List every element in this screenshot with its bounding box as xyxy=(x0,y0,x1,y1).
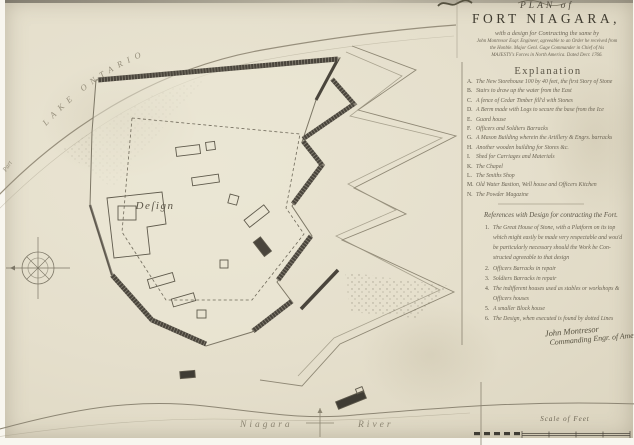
explanation-item: G.A Mason Building wherein the Artillery… xyxy=(467,135,612,141)
item-number: 6. xyxy=(485,316,493,322)
reference-item: 2.Officers Barracks in repair xyxy=(485,266,556,272)
item-number: 1. xyxy=(485,225,493,231)
item-text: A Mason Building wherein the Artillery &… xyxy=(476,135,612,141)
plan-of-title: PLAN of xyxy=(462,1,632,11)
item-text: Another wooden building for Stores &c. xyxy=(476,145,569,151)
item-text: A fence of Cedar Timber fill'd with Ston… xyxy=(476,98,573,104)
reference-item: 6.The Design, when executed is found by … xyxy=(485,316,613,322)
item-letter: C. xyxy=(467,98,476,104)
item-letter: I. xyxy=(467,154,476,160)
item-text: Stairs to draw up the water from the Eas… xyxy=(476,88,572,94)
compass-rose-icon xyxy=(6,237,70,299)
item-text: The Great House of Stone, with a Platfor… xyxy=(493,225,615,231)
reference-item: 4.The indifferent houses used as stables… xyxy=(485,286,619,292)
item-letter: D. xyxy=(467,107,476,113)
item-letter: M. xyxy=(467,182,476,188)
fort-niagara-title: FORT NIAGARA, xyxy=(460,11,632,27)
subtitle-line: John Montresor Esqr. Engineer, agreeable… xyxy=(461,39,633,44)
item-text: Shed for Carriages and Materials xyxy=(476,154,555,160)
explanation-item: F.Officers and Soldiers Barracks xyxy=(467,126,548,132)
item-letter: G. xyxy=(467,135,476,141)
reference-item-line: structed agreeable to that design xyxy=(493,255,569,261)
item-letter: L. xyxy=(467,173,476,179)
reference-item: 3.Soldiers Barracks in repair xyxy=(485,276,556,282)
item-letter: E. xyxy=(467,117,476,123)
stipple-area xyxy=(345,272,452,318)
explanation-item: B.Stairs to draw up the water from the E… xyxy=(467,88,572,94)
explanation-item: L.The Smiths Shop xyxy=(467,173,515,179)
item-number: 3. xyxy=(485,276,493,282)
item-letter: F. xyxy=(467,126,476,132)
niagara-river-label-word1: Niagara xyxy=(240,420,293,430)
item-text: The Chapel xyxy=(476,164,503,170)
item-letter: N. xyxy=(467,192,476,198)
item-text: Officers Barracks in repair xyxy=(493,266,556,272)
reference-item: 1.The Great House of Stone, with a Platf… xyxy=(485,225,615,231)
reference-item-line: Officers houses xyxy=(493,296,529,302)
item-text: The Powder Magazine xyxy=(476,192,529,198)
reference-item-line: which might easily be made very respecta… xyxy=(493,235,622,241)
explanation-item: K.The Chapel xyxy=(467,164,503,170)
item-number: 5. xyxy=(485,306,493,312)
explanation-item: H.Another wooden building for Stores &c. xyxy=(467,145,569,151)
item-text: The Smiths Shop xyxy=(476,173,515,179)
niagara-river-label-word2: River xyxy=(358,420,394,430)
item-text: A Berm made with Logs to secure the base… xyxy=(476,107,604,113)
item-text: Guard house xyxy=(476,117,506,123)
subtitle-line: MAJESTY's Forces in North America. Dated… xyxy=(461,53,633,58)
design-label: Deſign xyxy=(120,200,190,212)
explanation-item: A.The New Storehouse 100 by 40 feet, the… xyxy=(467,79,612,85)
explanation-heading: Explanation xyxy=(462,66,634,77)
explanation-item: C.A fence of Cedar Timber fill'd with St… xyxy=(467,98,573,104)
item-letter: B. xyxy=(467,88,476,94)
subtitle-line: with a design for Contracting the same b… xyxy=(461,30,633,37)
item-text: Soldiers Barracks in repair xyxy=(493,276,556,282)
scale-of-feet-label: Scale of Feet xyxy=(513,415,617,423)
item-letter: A. xyxy=(467,79,476,85)
explanation-item: E.Guard house xyxy=(467,117,506,123)
explanation-item: N.The Powder Magazine xyxy=(467,192,529,198)
item-text: Officers and Soldiers Barracks xyxy=(476,126,548,132)
item-letter: K. xyxy=(467,164,476,170)
references-heading: References with Design for contracting t… xyxy=(484,212,634,219)
item-text: The indifferent houses used as stables o… xyxy=(493,286,619,292)
explanation-item: D.A Berm made with Logs to secure the ba… xyxy=(467,107,604,113)
explanation-item: I.Shed for Carriages and Materials xyxy=(467,154,555,160)
explanation-item: M.Old Water Bastion, Well house and Offi… xyxy=(467,182,597,188)
item-number: 2. xyxy=(485,266,493,272)
map-scan: LAKE ONTARIO PLAN of FORT NIAGARA, with … xyxy=(0,0,634,445)
item-text: A smaller Block house xyxy=(493,306,545,312)
item-number: 4. xyxy=(485,286,493,292)
item-text: The New Storehouse 100 by 40 feet, the f… xyxy=(476,79,612,85)
item-letter: H. xyxy=(467,145,476,151)
scale-bar xyxy=(474,431,630,438)
subtitle-line: the Honble. Major Genl. Gage Commander i… xyxy=(461,46,633,51)
item-text: The Design, when executed is found by do… xyxy=(493,316,613,322)
reference-item-line: be particularly necessary should the Wor… xyxy=(493,245,611,251)
reference-item: 5.A smaller Block house xyxy=(485,306,545,312)
item-text: Old Water Bastion, Well house and Office… xyxy=(476,182,597,188)
north-arrow-icon xyxy=(306,408,334,437)
